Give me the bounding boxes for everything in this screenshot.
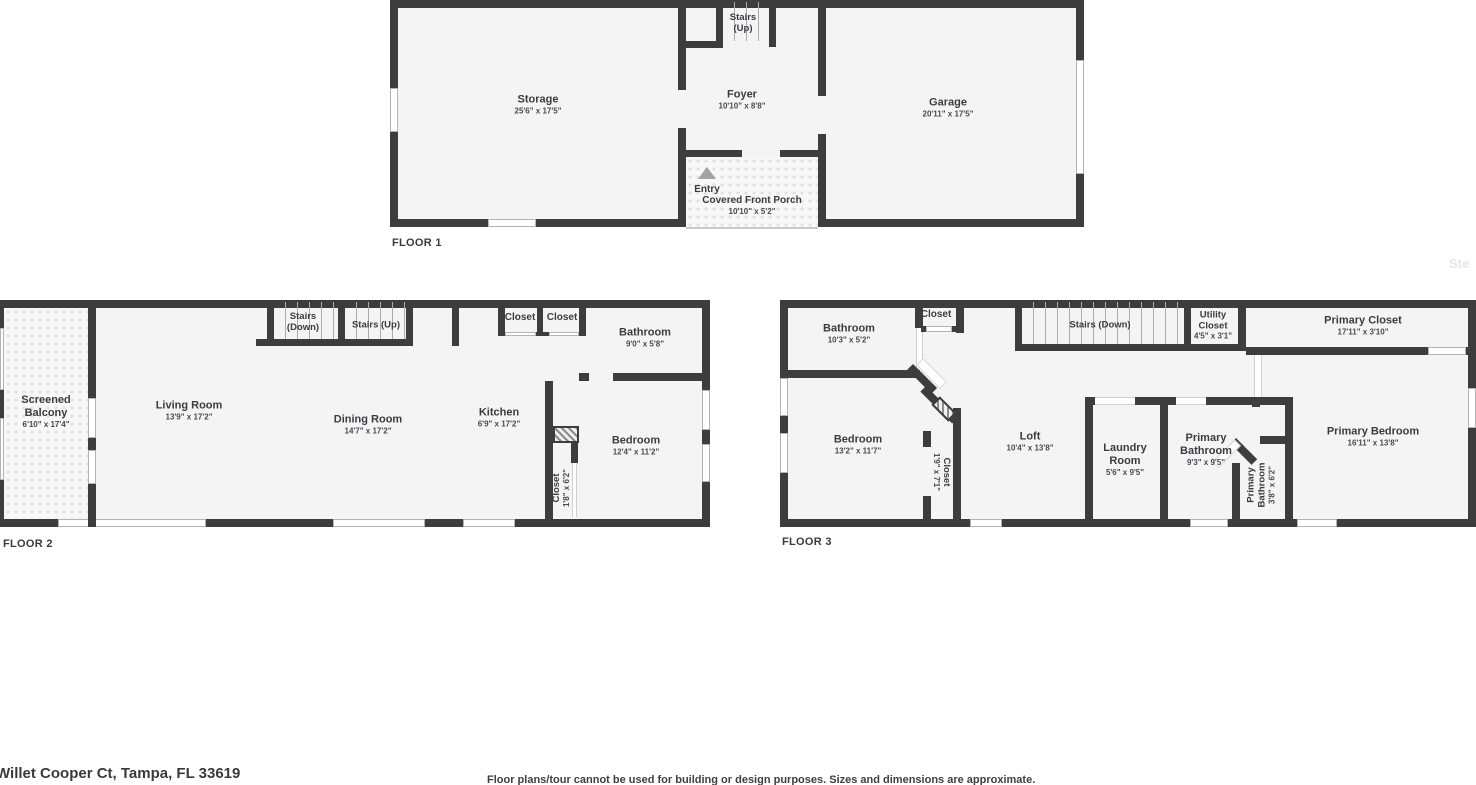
address-text: Willet Cooper Ct, Tampa, FL 33619 (0, 765, 240, 782)
door-opening (1254, 355, 1262, 397)
floor2-plan: Screened Balcony 6'10" x 17'4" Living Ro… (0, 300, 710, 527)
window (702, 390, 710, 430)
closet-door (505, 332, 536, 336)
window (88, 450, 96, 484)
wall (780, 370, 920, 378)
room-label-stairs-down: Stairs (Down) (1045, 319, 1155, 330)
window (58, 519, 206, 527)
wall (686, 150, 742, 157)
window (1297, 519, 1337, 527)
room-label-covered-front-porch: Covered Front Porch 10'10" x 5'2" (677, 195, 827, 217)
room-label-primary-closet: Primary Closet 17'11" x 3'10" (1324, 314, 1402, 337)
wall (1015, 300, 1022, 350)
floor2-label: FLOOR 2 (3, 538, 53, 550)
room-label-closet-vertical: Closet 1'9" x 7'1" (930, 453, 952, 491)
room-label-living-room: Living Room 13'9" x 17'2" (156, 399, 223, 422)
floor-plan-page: Storage 25'6" x 17'5" Stairs (Up) Foyer … (0, 0, 1476, 785)
wall (1232, 463, 1240, 520)
closet-door (549, 332, 579, 336)
wall (820, 219, 1084, 227)
watermark: Ste (1449, 256, 1469, 271)
wall (1184, 344, 1246, 351)
wall (1238, 300, 1246, 350)
window (1428, 347, 1466, 355)
window (390, 88, 398, 132)
room-label-closet: Closet (505, 312, 536, 324)
closet-shelf (553, 426, 579, 443)
room-label-primary-bathroom-vertical: Primary Bathroom 3'8" x 6'2" (1246, 455, 1279, 515)
wall (923, 431, 931, 447)
window (1468, 388, 1476, 428)
wall (579, 300, 586, 332)
window (488, 219, 536, 227)
entry-arrow-icon (698, 167, 716, 179)
wall (537, 300, 543, 336)
room-label-primary-bedroom: Primary Bedroom 16'11" x 13'8" (1327, 425, 1419, 448)
wall (256, 339, 413, 346)
wall (1260, 436, 1287, 444)
door-opening (1095, 397, 1135, 405)
wall (769, 0, 776, 47)
room-label-foyer: Foyer 10'10" x 8'8" (719, 88, 766, 111)
room-label-stairs-up: Stairs (Up) (721, 12, 765, 34)
wall (613, 373, 710, 381)
wall (390, 219, 686, 227)
wall (818, 0, 826, 96)
window (333, 519, 425, 527)
floor3-plan: Bathroom 10'3" x 5'2" Closet Stairs (Dow… (780, 300, 1476, 527)
room-label-dining-room: Dining Room 14'7" x 17'2" (334, 413, 402, 436)
wall (1285, 397, 1293, 520)
room-label-loft: Loft 10'4" x 13'8" (1007, 430, 1054, 453)
window (702, 444, 710, 482)
room-label-bathroom: Bathroom 9'0" x 5'8" (619, 326, 671, 349)
room-label-stairs-up: Stairs (Up) (326, 319, 426, 330)
window (88, 398, 96, 438)
wall (780, 519, 1476, 527)
window (463, 519, 515, 527)
wall (452, 300, 459, 346)
room-label-primary-bathroom: Primary Bathroom 9'3" x 9'5" (1166, 432, 1246, 468)
wall (88, 484, 96, 527)
door-opening (1176, 397, 1206, 405)
room-label-closet: Closet (921, 309, 952, 321)
wall (88, 438, 96, 450)
wall (1015, 344, 1191, 351)
room-label-closet: Closet (547, 312, 578, 324)
room-label-bathroom: Bathroom 10'3" x 5'2" (823, 322, 875, 345)
floor1-label: FLOOR 1 (392, 237, 442, 249)
room-label-storage: Storage 25'6" x 17'5" (515, 93, 562, 116)
room-label-utility-closet: Utility Closet 4'5" x 3'1" (1190, 310, 1236, 343)
window (780, 433, 788, 473)
wall (923, 496, 931, 520)
wall (678, 41, 723, 48)
disclaimer-text: Floor plans/tour cannot be used for buil… (487, 774, 1035, 785)
floor1-plan: Storage 25'6" x 17'5" Stairs (Up) Foyer … (390, 0, 1084, 227)
room-label-laundry-room: Laundry Room 5'6" x 9'5" (1094, 442, 1156, 478)
room-label-kitchen: Kitchen 6'9" x 17'2" (478, 406, 521, 429)
window (1190, 519, 1228, 527)
wall (780, 150, 818, 157)
room-label-closet-vertical: Closet 1'8" x 6'2" (551, 469, 573, 507)
room-label-screened-balcony: Screened Balcony 6'10" x 17'4" (6, 394, 86, 430)
wall (88, 300, 96, 398)
room-label-garage: Garage 20'11" x 17'5" (923, 96, 974, 119)
floor3-label: FLOOR 3 (782, 536, 832, 548)
room-label-bedroom: Bedroom 13'2" x 11'7" (834, 433, 882, 456)
wall (953, 408, 961, 520)
wall (1085, 397, 1093, 520)
wall (571, 443, 578, 463)
room-label-stairs-down: Stairs (Down) (275, 311, 331, 333)
window (970, 519, 1002, 527)
window (780, 378, 788, 416)
closet-door (926, 326, 952, 332)
room-label-bedroom: Bedroom 12'4" x 11'2" (612, 434, 660, 457)
garage-door-opening (1076, 60, 1084, 174)
wall (579, 373, 589, 381)
